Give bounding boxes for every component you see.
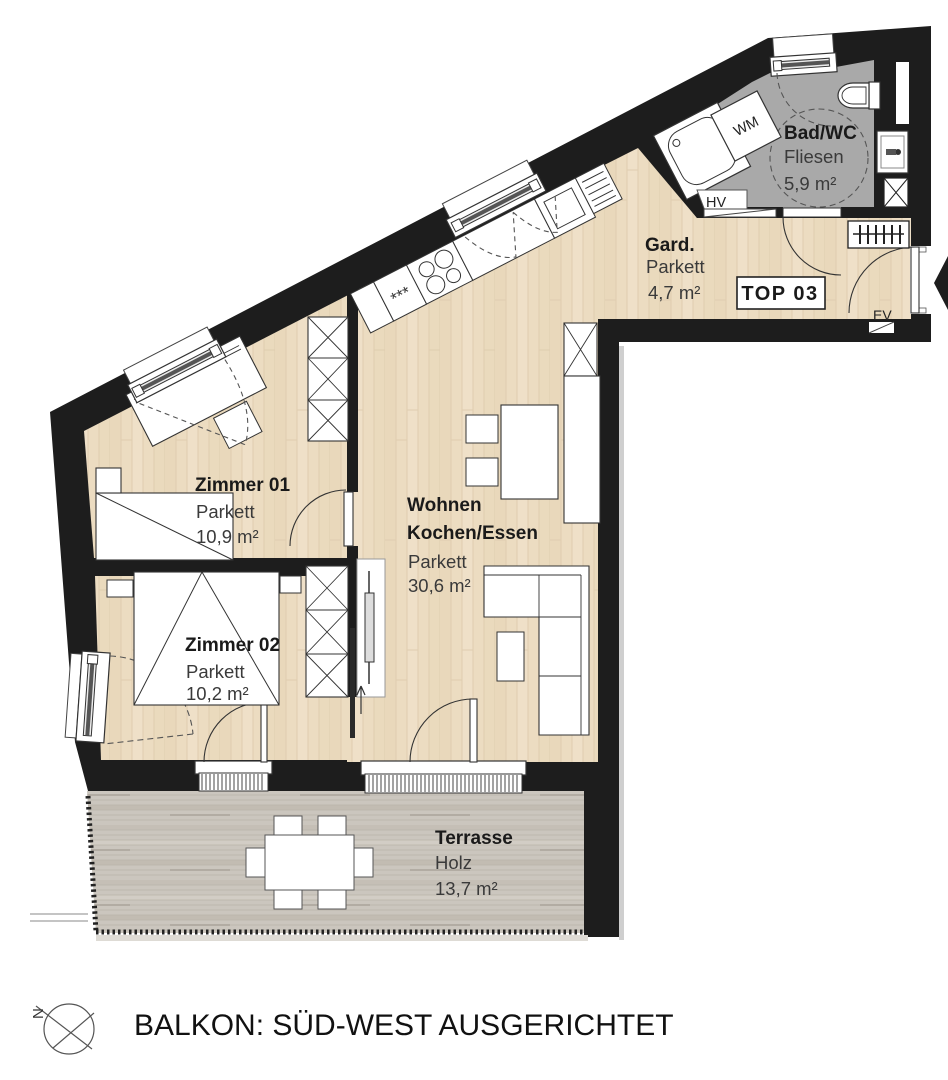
svg-text:10,9 m²: 10,9 m² <box>196 526 259 547</box>
svg-text:Terrasse: Terrasse <box>435 828 513 849</box>
svg-text:Holz: Holz <box>435 852 472 873</box>
svg-text:Kochen/Essen: Kochen/Essen <box>407 523 538 544</box>
svg-text:Zimmer 02: Zimmer 02 <box>185 635 280 656</box>
svg-text:Parkett: Parkett <box>186 661 245 682</box>
svg-text:BALKON: SÜD-WEST AUSGERICHTET: BALKON: SÜD-WEST AUSGERICHTET <box>134 1009 674 1042</box>
svg-text:30,6 m²: 30,6 m² <box>408 575 471 596</box>
svg-text:Parkett: Parkett <box>408 551 467 572</box>
svg-text:N: N <box>30 1008 47 1019</box>
svg-text:Parkett: Parkett <box>196 501 255 522</box>
svg-text:HV: HV <box>706 195 726 211</box>
svg-text:4,7 m²: 4,7 m² <box>648 282 700 303</box>
svg-text:10,2 m²: 10,2 m² <box>186 683 249 704</box>
svg-text:TOP 03: TOP 03 <box>741 283 818 305</box>
svg-text:EV: EV <box>873 307 892 323</box>
svg-text:Bad/WC: Bad/WC <box>784 123 857 144</box>
svg-text:5,9 m²: 5,9 m² <box>784 173 836 194</box>
svg-text:13,7 m²: 13,7 m² <box>435 878 498 899</box>
svg-text:Wohnen: Wohnen <box>407 495 482 516</box>
svg-text:Fliesen: Fliesen <box>784 146 844 167</box>
svg-text:Zimmer 01: Zimmer 01 <box>195 475 290 496</box>
svg-text:Parkett: Parkett <box>646 256 705 277</box>
svg-text:Gard.: Gard. <box>645 235 695 256</box>
